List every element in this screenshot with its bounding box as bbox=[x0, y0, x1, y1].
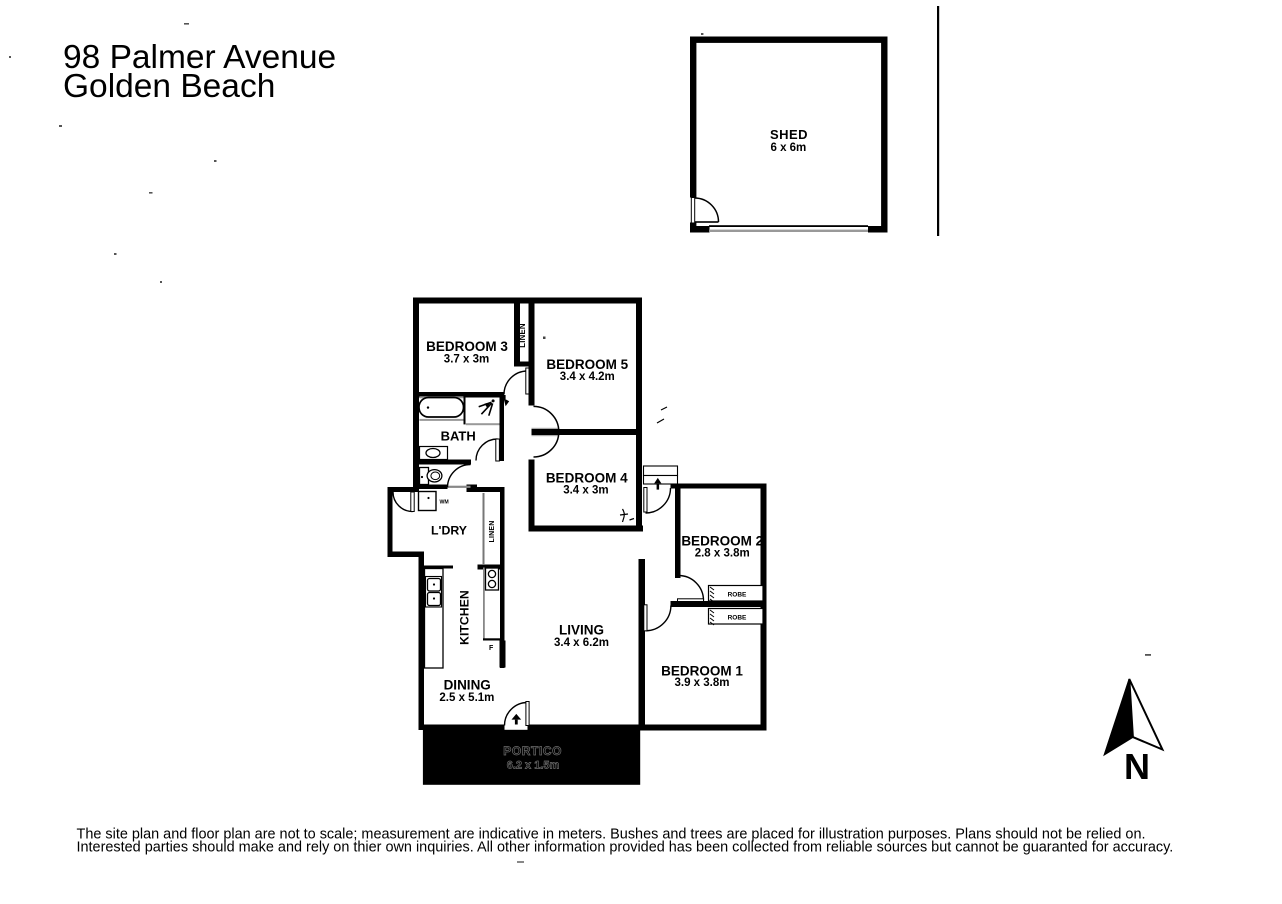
svg-text:N: N bbox=[1124, 746, 1150, 787]
svg-text:WM: WM bbox=[440, 499, 449, 505]
svg-text:BEDROOM 3: BEDROOM 3 bbox=[426, 339, 508, 354]
svg-text:6.2 x 1.5m: 6.2 x 1.5m bbox=[507, 760, 560, 772]
svg-text:3.7 x 3m: 3.7 x 3m bbox=[444, 354, 489, 366]
svg-text:BEDROOM 4: BEDROOM 4 bbox=[546, 471, 628, 486]
svg-text:ROBE: ROBE bbox=[728, 592, 747, 599]
svg-text:Golden Beach: Golden Beach bbox=[63, 68, 275, 105]
svg-text:3.9 x 3.8m: 3.9 x 3.8m bbox=[675, 677, 730, 689]
svg-text:LINEN: LINEN bbox=[518, 323, 527, 348]
svg-text:SHED: SHED bbox=[770, 127, 808, 142]
svg-text:LIVING: LIVING bbox=[559, 623, 604, 638]
svg-text:F: F bbox=[489, 645, 494, 652]
svg-text:LINEN: LINEN bbox=[489, 521, 496, 543]
svg-text:L'DRY: L'DRY bbox=[431, 524, 467, 538]
svg-text:3.4 x 3m: 3.4 x 3m bbox=[563, 485, 608, 497]
svg-text:BEDROOM 2: BEDROOM 2 bbox=[681, 534, 763, 549]
svg-text:BATH: BATH bbox=[441, 429, 476, 444]
svg-text:2.8 x 3.8m: 2.8 x 3.8m bbox=[695, 548, 750, 560]
svg-text:6 x 6m: 6 x 6m bbox=[770, 142, 806, 154]
svg-text:ROBE: ROBE bbox=[728, 615, 747, 622]
svg-text:3.4 x 4.2m: 3.4 x 4.2m bbox=[560, 371, 615, 383]
svg-text:2.5 x 5.1m: 2.5 x 5.1m bbox=[439, 692, 494, 704]
svg-text:Interested parties should make: Interested parties should make and rely … bbox=[77, 840, 1174, 856]
svg-text:3.4 x 6.2m: 3.4 x 6.2m bbox=[554, 637, 609, 649]
svg-text:BEDROOM 5: BEDROOM 5 bbox=[546, 357, 628, 372]
svg-text:PORTICO: PORTICO bbox=[503, 744, 562, 758]
svg-text:KITCHEN: KITCHEN bbox=[457, 590, 471, 645]
svg-text:DINING: DINING bbox=[444, 678, 491, 693]
